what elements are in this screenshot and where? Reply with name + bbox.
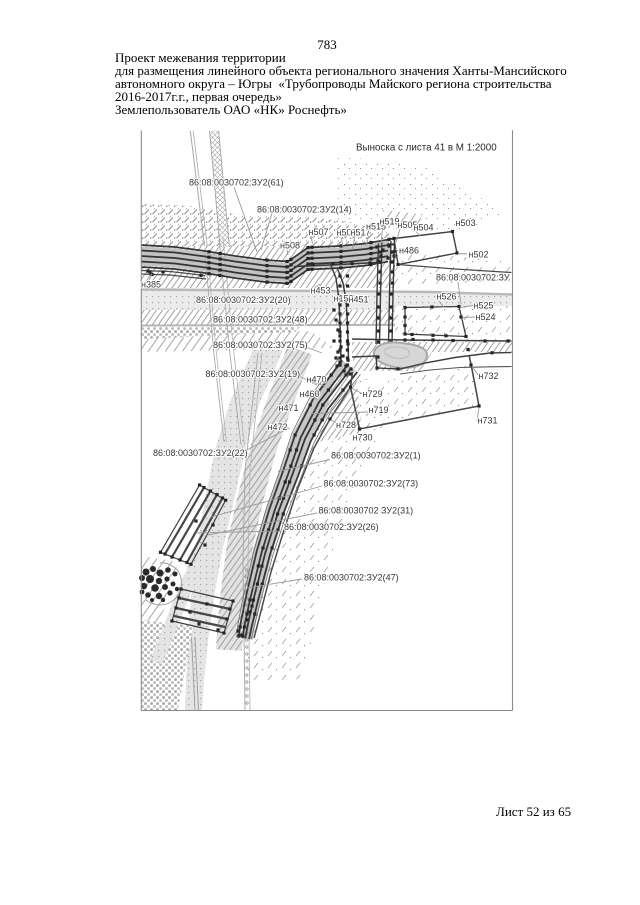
svg-text:86:08:0030702:ЗУ2(73): 86:08:0030702:ЗУ2(73) bbox=[324, 479, 419, 489]
svg-text:н486: н486 bbox=[399, 246, 419, 256]
svg-text:86:08:0030702:ЗУ2(20): 86:08:0030702:ЗУ2(20) bbox=[196, 295, 291, 305]
svg-text:н472: н472 bbox=[268, 422, 288, 432]
svg-text:н460: н460 bbox=[300, 389, 320, 399]
svg-text:н519: н519 bbox=[380, 217, 400, 227]
svg-text:н471: н471 bbox=[279, 403, 299, 413]
svg-text:н524: н524 bbox=[476, 312, 496, 322]
svg-text:н526: н526 bbox=[437, 292, 457, 302]
svg-text:86:08:0030702:ЗУ2(47): 86:08:0030702:ЗУ2(47) bbox=[304, 573, 399, 583]
svg-text:86:08:0030702 ЗУ2(31): 86:08:0030702 ЗУ2(31) bbox=[319, 506, 414, 516]
svg-text:н731: н731 bbox=[478, 416, 498, 426]
svg-text:н728: н728 bbox=[336, 420, 356, 430]
svg-text:н385: н385 bbox=[141, 280, 161, 290]
svg-text:н507: н507 bbox=[309, 227, 329, 237]
svg-text:86:08:0030702:ЗУ2(22): 86:08:0030702:ЗУ2(22) bbox=[153, 448, 248, 458]
svg-text:н453: н453 bbox=[311, 286, 331, 296]
svg-text:н504: н504 bbox=[414, 223, 434, 233]
svg-text:н730: н730 bbox=[353, 433, 373, 443]
svg-text:Выноска с листа 41 в М 1:2000: Выноска с листа 41 в М 1:2000 bbox=[356, 143, 497, 154]
svg-text:86:08:0030702:ЗУ2(14): 86:08:0030702:ЗУ2(14) bbox=[257, 205, 352, 215]
svg-text:н525: н525 bbox=[474, 301, 494, 311]
svg-text:н508: н508 bbox=[280, 241, 300, 251]
svg-text:86:08:0030702:ЗУ2(26): 86:08:0030702:ЗУ2(26) bbox=[284, 522, 379, 532]
svg-text:н732: н732 bbox=[479, 371, 499, 381]
svg-text:н470: н470 bbox=[307, 375, 327, 385]
svg-text:86:08:0030702:ЗУ2(1): 86:08:0030702:ЗУ2(1) bbox=[331, 451, 421, 461]
svg-text:н502: н502 bbox=[469, 250, 489, 260]
svg-text:86:08:0030702:ЗУ2(48): 86:08:0030702:ЗУ2(48) bbox=[213, 315, 308, 325]
svg-text:86:08:0030702:ЗУ: 86:08:0030702:ЗУ bbox=[436, 273, 510, 283]
svg-text:н719: н719 bbox=[369, 405, 389, 415]
svg-text:н729: н729 bbox=[363, 389, 383, 399]
svg-text:н503: н503 bbox=[456, 218, 476, 228]
svg-text:86:08:0030702:ЗУ2(19): 86:08:0030702:ЗУ2(19) bbox=[206, 369, 301, 379]
svg-text:86:08:0030702:ЗУ2(61): 86:08:0030702:ЗУ2(61) bbox=[189, 178, 284, 188]
svg-text:86:08:0030702:ЗУ2(75): 86:08:0030702:ЗУ2(75) bbox=[213, 340, 308, 350]
svg-text:н451: н451 bbox=[349, 295, 369, 305]
